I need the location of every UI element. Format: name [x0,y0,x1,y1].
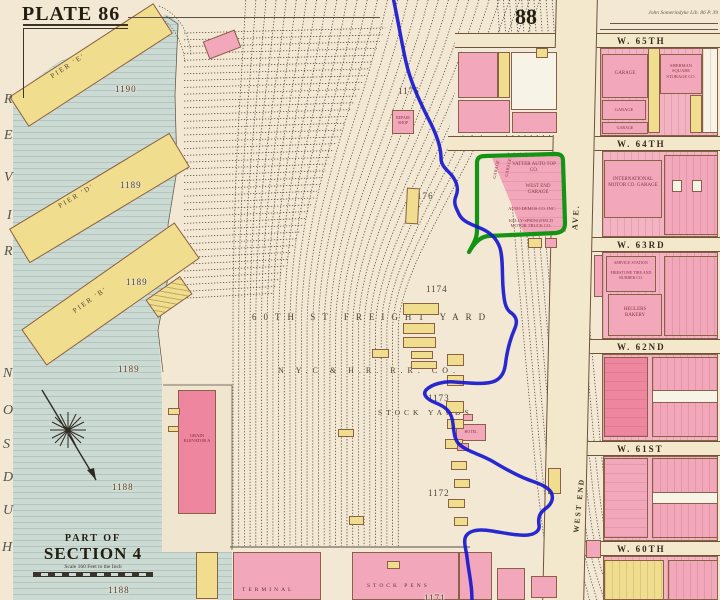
route-annotation [393,0,552,600]
highlight-box-annotation [469,154,565,252]
annotation-overlay [0,0,720,600]
atlas-map: VATTER AUTO TOP CO. GARAGE GARAGE WEST E… [0,0,720,600]
